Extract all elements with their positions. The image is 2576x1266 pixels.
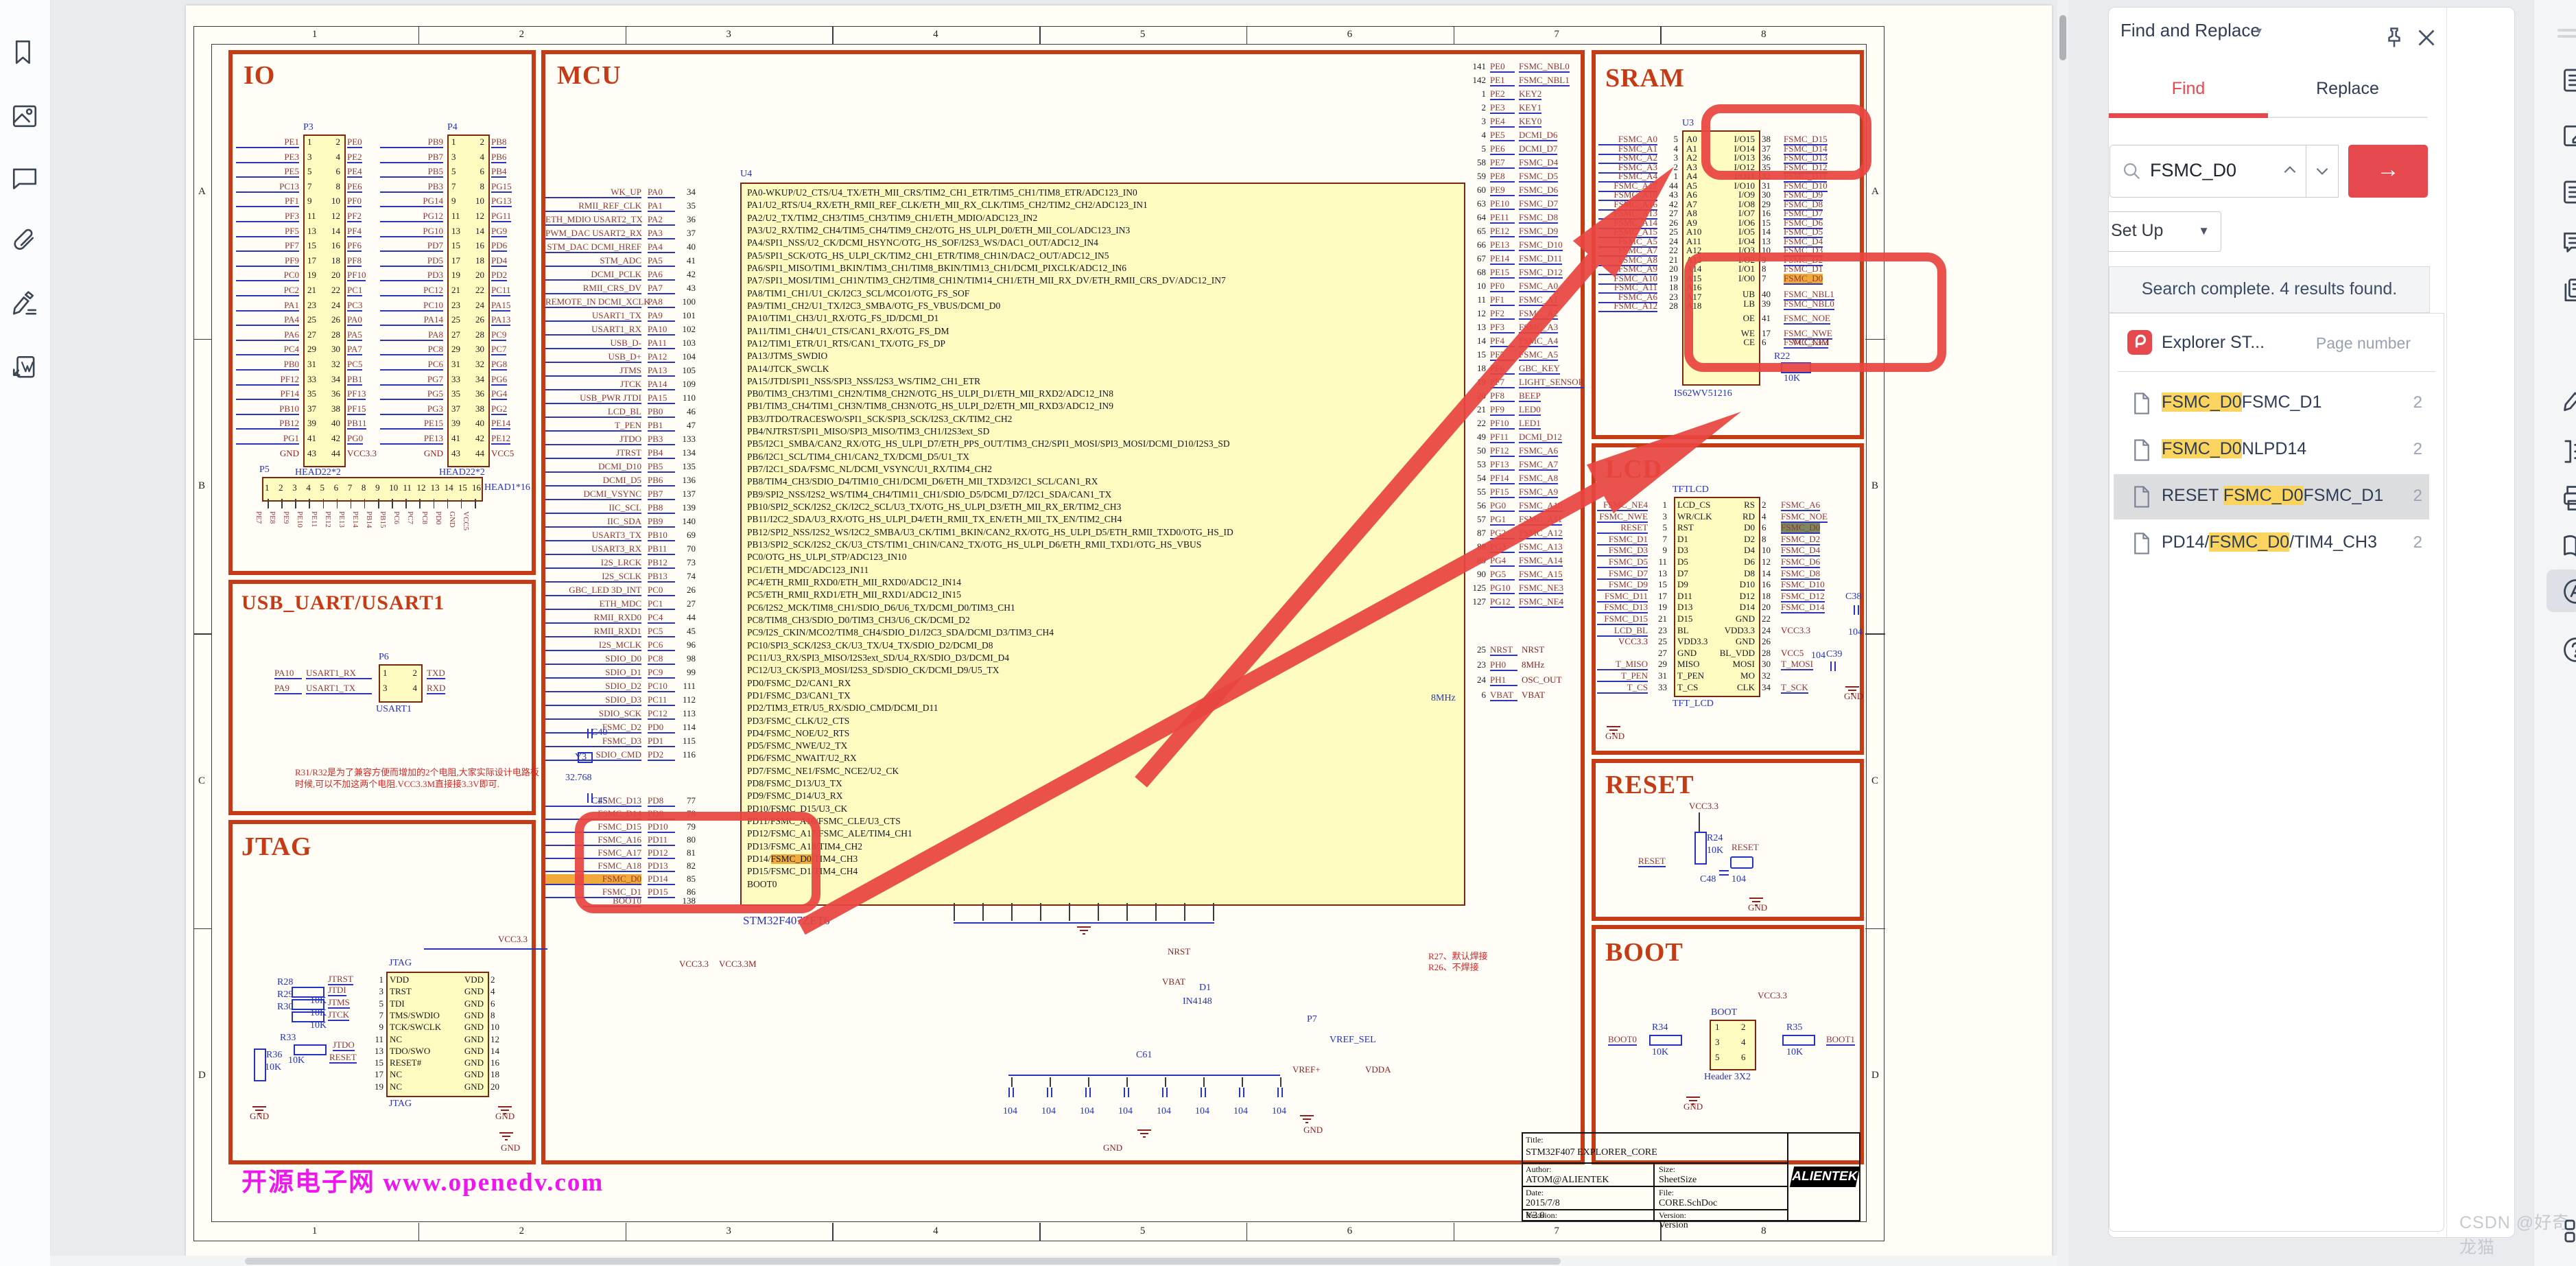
- wire: [309, 499, 310, 508]
- net-label: WK_UP: [545, 187, 641, 198]
- net-label: PF15: [347, 404, 366, 415]
- pin-number: 96: [679, 640, 696, 650]
- bookmark-icon[interactable]: [10, 38, 39, 67]
- chip-pin-name: RS: [1715, 500, 1755, 510]
- result-row[interactable]: FSMC_D0FSMC_D12: [2114, 381, 2429, 426]
- net-label: JTRST: [328, 974, 353, 985]
- highlighted-match: FSMC_D0: [2223, 486, 2304, 505]
- pin-number: 13: [371, 1046, 383, 1056]
- part-value: 10K: [1784, 373, 1800, 384]
- pin-number: 31: [307, 360, 316, 369]
- port-label: PC4: [648, 613, 675, 624]
- net-label: PF6: [347, 241, 362, 252]
- port-label: PE6: [1490, 144, 1515, 155]
- wire: [1749, 898, 1763, 899]
- wire: [1039, 1223, 1041, 1241]
- part-ref: R34: [1652, 1022, 1668, 1033]
- net-label: PF4: [347, 226, 362, 237]
- chip-pin-name: LCD_CS: [1677, 500, 1710, 510]
- horizontal-scrollbar-thumb[interactable]: [245, 1258, 1561, 1265]
- wire: [1040, 903, 1041, 921]
- power-label: GND: [1605, 731, 1624, 741]
- wire: [1008, 1088, 1010, 1097]
- pin-number: 2: [1741, 1022, 1746, 1032]
- pin-number: 67: [1467, 254, 1486, 263]
- net-label: GBC_LED 3D_INT: [545, 585, 641, 596]
- pin-number: 16: [1762, 580, 1777, 589]
- net-label: USB_PWR JTDI: [545, 393, 641, 404]
- vertical-scrollbar-thumb[interactable]: [2059, 15, 2066, 60]
- pin-number: 32: [327, 360, 340, 369]
- pin-icon[interactable]: [2382, 25, 2407, 50]
- find-previous-button[interactable]: [2274, 145, 2306, 198]
- net-label: SDIO_D3: [545, 695, 641, 706]
- pin-number: 10: [389, 483, 398, 493]
- port-label: PF8: [1490, 391, 1515, 402]
- wire: [378, 499, 379, 508]
- pin-number: 36: [327, 389, 340, 399]
- pin-number: 142: [1467, 75, 1486, 85]
- misc-label: VREF+: [1292, 1065, 1321, 1075]
- wire: [447, 499, 449, 508]
- net-label: JTMS: [328, 998, 350, 1009]
- chip-pin-name: GND: [455, 1058, 484, 1068]
- result-page-number: 2: [2413, 393, 2422, 412]
- net-label: FSMC_D10: [1519, 240, 1563, 251]
- book-flip-icon[interactable]: [2561, 532, 2576, 562]
- pin-number: 43: [679, 283, 696, 293]
- net-label: PG7: [380, 375, 443, 386]
- cap-value: 104: [1195, 1106, 1209, 1116]
- pin-number: 5: [371, 999, 383, 1009]
- net-label: FSMC_D3: [1597, 546, 1648, 556]
- port-label: PA7: [648, 283, 675, 294]
- net-label: RMII_CRS_DV: [545, 283, 641, 294]
- paperclip-icon[interactable]: [10, 227, 39, 256]
- pin-number: 28: [327, 330, 340, 340]
- edit-square-icon[interactable]: [2561, 121, 2576, 151]
- port-label: PE7: [1490, 158, 1515, 169]
- wire: [1854, 605, 1855, 615]
- chip-pin-function: PB10/SPI2_SCK/I2S2_CK/I2C2_SCL/U3_TX/OTG…: [747, 502, 1456, 512]
- chip-pin-function: PD9/FSMC_D14/U3_RX: [747, 791, 1456, 801]
- chip-pin-name: VDD: [390, 975, 409, 985]
- chip-pin-name: A0: [1686, 134, 1697, 144]
- chip-pin-name: I/O5: [1725, 227, 1755, 237]
- net-label: SDIO_D0: [545, 654, 641, 665]
- doc-text-icon[interactable]: [2561, 65, 2576, 95]
- wire: [1699, 812, 1700, 832]
- net-label: FSMC_A5: [1519, 350, 1558, 361]
- port-label: PB0: [648, 407, 675, 418]
- net-label: T_MOSI: [1781, 659, 1813, 670]
- find-next-button[interactable]: [2306, 145, 2339, 198]
- net-label: DCMI_D7: [1519, 144, 1557, 155]
- net-label: FSMC_A6: [1781, 500, 1820, 511]
- part-label: JTAG: [389, 1099, 412, 1109]
- block-title-sram: SRAM: [1605, 63, 1685, 93]
- net-label: FSMC_A8: [1519, 473, 1558, 484]
- doc-text2-icon[interactable]: [2561, 177, 2576, 207]
- wire: [1011, 903, 1013, 921]
- result-row[interactable]: FSMC_D0NLPD142: [2114, 427, 2429, 473]
- chip-pin-function: PC6/I2S2_MCK/TIM8_CH1/SDIO_D6/U6_TX/DCMI…: [747, 603, 1456, 613]
- net-label: I2S_MCLK: [545, 640, 641, 651]
- net-label: LCD_BL: [1597, 626, 1648, 637]
- wire: [1013, 1088, 1014, 1097]
- pin-number: 4: [327, 152, 340, 162]
- pin-number: 7: [1652, 535, 1667, 544]
- net-label: PC7: [405, 511, 415, 524]
- port-label: PG0: [1490, 501, 1515, 512]
- pin-number: 6: [1741, 1053, 1746, 1062]
- net-label: PG5: [380, 389, 443, 400]
- port-label: PE11: [1490, 213, 1515, 224]
- pen-sign-icon[interactable]: [10, 290, 39, 319]
- power-label: VCC3.3: [498, 935, 528, 944]
- comment-icon[interactable]: [10, 164, 39, 193]
- pin-number: 11: [371, 1035, 383, 1044]
- port-label: PE8: [1490, 172, 1515, 183]
- power-label: VCC3.3: [1758, 991, 1787, 1000]
- pin-number: 30: [471, 344, 484, 354]
- chip-pin-function: PA4/SPI1_NSS/U2_CK/DCMI_HSYNC/OTG_HS_SOF…: [747, 238, 1456, 248]
- chip-pin-function: PD12/FSMC_A17/FSMC_ALE/TIM4_CH1: [747, 829, 1456, 839]
- net-label: FSMC_NWE: [1597, 512, 1648, 523]
- row-label: D: [1871, 1070, 1879, 1081]
- wire: [1607, 726, 1620, 727]
- wire: [295, 499, 296, 508]
- chip-pin-function: PC5/ETH_RMII_RXD1/ETH_MII_RXD1/ADC12_IN1…: [747, 590, 1456, 600]
- part-value: 10K: [265, 1062, 281, 1072]
- apps-grid-icon[interactable]: [2561, 1216, 2576, 1246]
- net-label: SDIO_D1: [545, 668, 641, 679]
- pin-number: 25: [451, 315, 460, 325]
- net-label: USART1_TX: [545, 311, 641, 322]
- pin-number: 41: [679, 256, 696, 266]
- pin-number: 30: [327, 344, 340, 354]
- wire: [832, 26, 834, 44]
- pin-number: 20: [1662, 264, 1678, 274]
- pin-number: 104: [679, 352, 696, 362]
- app-root: 1122334455667788AABBCCDDIOMCUSRAMLCDUSB_…: [0, 0, 2576, 1266]
- pin-number: 8: [491, 1011, 495, 1020]
- port-label: PF1: [1490, 295, 1515, 306]
- chip-pin-name: D4: [1715, 546, 1755, 555]
- net-label: PG9: [491, 226, 507, 237]
- net-label: PG8: [491, 360, 507, 371]
- wire: [1454, 1223, 1455, 1241]
- chip-pin-name: D2: [1715, 535, 1755, 544]
- printer-icon[interactable]: [2561, 483, 2576, 513]
- chip-pin-name: D11: [1677, 591, 1692, 601]
- net-label: PC13: [236, 182, 299, 193]
- chip-pin-name: A10: [1686, 227, 1701, 237]
- wire: [1246, 26, 1248, 44]
- wire: [1008, 1075, 1280, 1076]
- wire: [1155, 903, 1157, 921]
- net-label: PC1: [347, 285, 362, 296]
- net-label: TXD: [427, 668, 445, 679]
- column-label: 8: [1761, 1226, 1766, 1237]
- net-label: DCMI_D6: [1519, 130, 1557, 141]
- port-label: PF10: [1490, 419, 1515, 430]
- close-icon[interactable]: [2414, 25, 2439, 50]
- wire: [499, 1132, 513, 1134]
- vertical-scrollbar[interactable]: [2057, 0, 2068, 1266]
- chip-pin-name: T_CS: [1677, 683, 1698, 692]
- chip-pin-function: PC0/OTG_HS_ULPI_STP/ADC123_IN10: [747, 552, 1456, 562]
- doc-export-icon[interactable]: [10, 353, 39, 382]
- pin-number: 6: [1762, 523, 1777, 532]
- port-label: PD1: [648, 736, 675, 747]
- wire: [832, 1223, 834, 1241]
- net-label: PB11: [347, 419, 366, 430]
- pin-number: 6: [1467, 690, 1486, 700]
- pin-number: 59: [1467, 172, 1486, 181]
- image-icon[interactable]: [10, 101, 39, 130]
- net-label: LED1: [1519, 419, 1541, 430]
- scope-dropdown[interactable]: Set Up ▼: [2108, 211, 2221, 252]
- comment-lines-icon[interactable]: [2561, 228, 2576, 258]
- net-label: USB_D+: [545, 352, 641, 363]
- row-label: B: [1871, 480, 1878, 492]
- wire: [461, 499, 462, 508]
- pin-number: 15: [458, 483, 467, 493]
- results-project-name[interactable]: Explorer ST...: [2162, 333, 2265, 353]
- wire: [1205, 1088, 1206, 1097]
- chip-pin-name: VDD: [455, 975, 484, 985]
- net-label: FSMC_A12: [1598, 301, 1657, 312]
- pin-number: 6: [334, 483, 339, 493]
- pin-number: 105: [679, 366, 696, 375]
- port-label: PA14: [648, 379, 675, 390]
- port-label: PA9: [274, 683, 302, 694]
- port-label: PB9: [648, 517, 675, 528]
- part-value: 10K: [1707, 845, 1723, 856]
- wire: [1201, 1088, 1202, 1097]
- net-label: PE14: [491, 419, 510, 430]
- panel-title-caret-icon[interactable]: ▾: [2256, 24, 2262, 38]
- column-label: 1: [312, 1226, 318, 1237]
- pin-number: 43: [451, 449, 460, 458]
- search-input[interactable]: [2149, 159, 2271, 182]
- pen-sign-icon[interactable]: [2561, 386, 2576, 416]
- net-label: PE3: [236, 152, 299, 163]
- help-icon[interactable]: [2561, 635, 2576, 665]
- net-label: PD7: [380, 241, 443, 252]
- wire: [1162, 1088, 1163, 1097]
- pin-number: 25: [307, 315, 316, 325]
- port-label: PE3: [1490, 103, 1515, 114]
- pin-number: 113: [679, 709, 696, 718]
- net-label: PE8: [268, 511, 277, 524]
- result-row[interactable]: PD14/FSMC_D0/TIM4_CH32: [2114, 521, 2429, 566]
- pin-number: 28: [1762, 648, 1777, 658]
- file-value: CORE.SchDoc: [1659, 1198, 1717, 1209]
- wire: [1128, 1088, 1129, 1097]
- pin-number: 74: [679, 572, 696, 581]
- net-label: IIC_SCL: [545, 503, 641, 514]
- pin-number: 41: [307, 434, 316, 443]
- port-label: PB13: [648, 572, 675, 583]
- chip-pin-function: PA10/TIM1_CH3/U1_RX/OTG_FS_ID/DCMI_D1: [747, 314, 1456, 323]
- net-label: I2S_SCLK: [545, 572, 641, 583]
- wire: [364, 499, 366, 508]
- columns-icon[interactable]: [2561, 436, 2576, 467]
- net-label: PA5: [347, 330, 362, 341]
- wire: [1047, 1088, 1048, 1097]
- result-text-segment: /TIM4_CH3: [2289, 532, 2377, 552]
- port-label: PG12: [1490, 597, 1515, 608]
- pin-number: 100: [679, 297, 696, 307]
- net-label: STM_ADC: [545, 256, 641, 267]
- pin-number: 20: [1762, 602, 1777, 612]
- net-label: PB7: [380, 152, 443, 163]
- net-label: FSMC_D15: [1597, 614, 1648, 625]
- wire: [1126, 903, 1128, 921]
- port-label: PH1: [1490, 675, 1517, 686]
- pin-number: 20: [327, 270, 340, 280]
- net-label: VCC3.3: [1597, 637, 1648, 646]
- net-label: PB3: [380, 182, 443, 193]
- net-label: BOOT0: [1608, 1035, 1637, 1046]
- pin-number: 1: [307, 137, 312, 147]
- tab-find[interactable]: Find: [2109, 79, 2268, 99]
- chip-pin-function: PA12/TIM1_ETR/U1_RTS/CAN1_TX/OTG_FS_DP: [747, 339, 1456, 349]
- annotation-box: [575, 812, 820, 913]
- net-label: GND: [380, 449, 443, 458]
- site-footer-text: 开源电子网 www.openedv.com: [241, 1161, 604, 1198]
- net-label: PA0: [347, 315, 362, 326]
- pin-number: 20: [491, 1082, 499, 1092]
- pin-number: 21: [307, 285, 316, 295]
- note-text: R31/R32是为了兼容方便而增加的2个电阻,大家实际设计电路板: [295, 767, 539, 778]
- net-label: PC2: [236, 285, 299, 296]
- pin-number: 112: [679, 695, 696, 705]
- pin-number: 50: [1467, 446, 1486, 456]
- chip-pin-function: PB8/TIM4_CH3/SDIO_D4/TIM10_CH1/DCMI_D6/E…: [747, 477, 1456, 487]
- wire: [982, 903, 984, 921]
- net-label: PB12: [236, 419, 299, 430]
- part-ref: R33: [280, 1033, 296, 1043]
- chip-pin-name: GND: [455, 1011, 484, 1020]
- misc-label: C61: [1136, 1050, 1152, 1060]
- port-label: PA15: [648, 393, 675, 404]
- search-box[interactable]: [2110, 145, 2276, 198]
- port-label: PA3: [648, 228, 675, 239]
- result-text: PD14/FSMC_D0/TIM4_CH3: [2162, 532, 2388, 552]
- net-label: PB1: [347, 375, 362, 386]
- pin-number: 5: [451, 167, 456, 176]
- pin-number: 4: [405, 683, 417, 693]
- net-label: PE13: [337, 511, 346, 528]
- chip-pin-function: PD14/FSMC_D0/TIM4_CH3: [747, 854, 1456, 864]
- pin-number: 2: [471, 137, 484, 147]
- pin-number: 110: [679, 393, 696, 403]
- port-label: PB11: [648, 544, 675, 555]
- pin-number: 16: [471, 241, 484, 250]
- chip-pin-function: PB1/TIM3_CH4/TIM1_CH3N/TIM8_CH3N/OTG_HS_…: [747, 401, 1456, 411]
- wire: [1051, 1088, 1052, 1097]
- net-label: FSMC_A6: [1519, 446, 1558, 457]
- right-toolbar-handle[interactable]: [2557, 29, 2576, 32]
- pin-number: 10: [491, 1022, 499, 1032]
- pin-number: 34: [1762, 683, 1777, 692]
- net-label: PWM_DAC USART2_RX: [545, 228, 641, 239]
- copy-pages-icon[interactable]: [2561, 276, 2576, 306]
- part-label: HEAD1*16: [484, 482, 530, 493]
- chip-pin-name: CLK: [1715, 683, 1755, 692]
- net-label: PA6: [236, 330, 299, 341]
- port-label: PE13: [1490, 240, 1515, 251]
- chip-pin-function: PD1/FSMC_D3/CAN1_TX: [747, 691, 1456, 701]
- wire: [591, 729, 593, 738]
- pin-number: 20: [471, 270, 484, 280]
- pin-number: 2: [279, 483, 283, 493]
- cap-value: 104: [1233, 1106, 1248, 1116]
- pin-number: 17: [371, 1070, 383, 1079]
- row-label: D: [198, 1070, 206, 1081]
- pin-number: 42: [327, 434, 340, 443]
- designator: P6: [379, 652, 389, 662]
- pin-number: 40: [679, 242, 696, 252]
- note-text: R27、默认焊接: [1428, 951, 1488, 962]
- net-label: USB_D-: [545, 338, 641, 349]
- net-label: FSMC_D6: [1519, 185, 1558, 196]
- pin-number: 25: [1467, 645, 1486, 655]
- net-label: PE5: [236, 167, 299, 178]
- column-label: 8: [1761, 29, 1766, 40]
- net-label: PE13: [380, 434, 443, 445]
- pin-number: 103: [679, 338, 696, 348]
- net-label: FSMC_D12: [1781, 591, 1825, 602]
- net-label: GND: [236, 449, 299, 458]
- port-label: PA8: [648, 297, 675, 308]
- chip-pin-function: PA14/JTCK_SWCLK: [747, 364, 1456, 374]
- result-text: FSMC_D0NLPD14: [2162, 439, 2388, 459]
- button-label: RESET: [1732, 843, 1759, 852]
- cap-value: 104: [1041, 1106, 1056, 1116]
- pin-number: 15: [451, 241, 460, 250]
- pin-number: 10: [1762, 546, 1777, 555]
- port-label: PG1: [1490, 515, 1515, 526]
- net-label: PF9: [236, 256, 299, 267]
- port-label: PA5: [648, 256, 675, 267]
- pin-number: 6: [491, 999, 495, 1009]
- pin-number: 18: [491, 1070, 499, 1079]
- pin-number: 102: [679, 325, 696, 334]
- pin-number: 9: [451, 196, 456, 206]
- pin-number: 28: [471, 330, 484, 340]
- tab-replace[interactable]: Replace: [2268, 79, 2427, 99]
- chip-pin-function: PB7/I2C1_SDA/FSMC_NL/DCMI_VSYNC/U1_RX/TI…: [747, 465, 1456, 474]
- search-go-button[interactable]: →: [2348, 145, 2428, 198]
- chip-pin-name: TMS/SWDIO: [390, 1011, 440, 1020]
- pin-number: 35: [307, 389, 316, 399]
- part-value: 10K: [288, 1055, 305, 1066]
- result-row[interactable]: RESET FSMC_D0FSMC_D12: [2114, 474, 2429, 519]
- port-label: NRST: [1490, 645, 1517, 656]
- chip-pin-name: A8: [1686, 209, 1697, 218]
- pin-number: 15: [1652, 580, 1667, 589]
- wire: [587, 729, 589, 738]
- pin-number: 26: [679, 585, 696, 595]
- column-label: 6: [1347, 29, 1353, 40]
- translate-a-icon[interactable]: [2561, 576, 2576, 607]
- net-label: VCC3.3: [1781, 626, 1810, 635]
- pin-number: 127: [1467, 597, 1486, 607]
